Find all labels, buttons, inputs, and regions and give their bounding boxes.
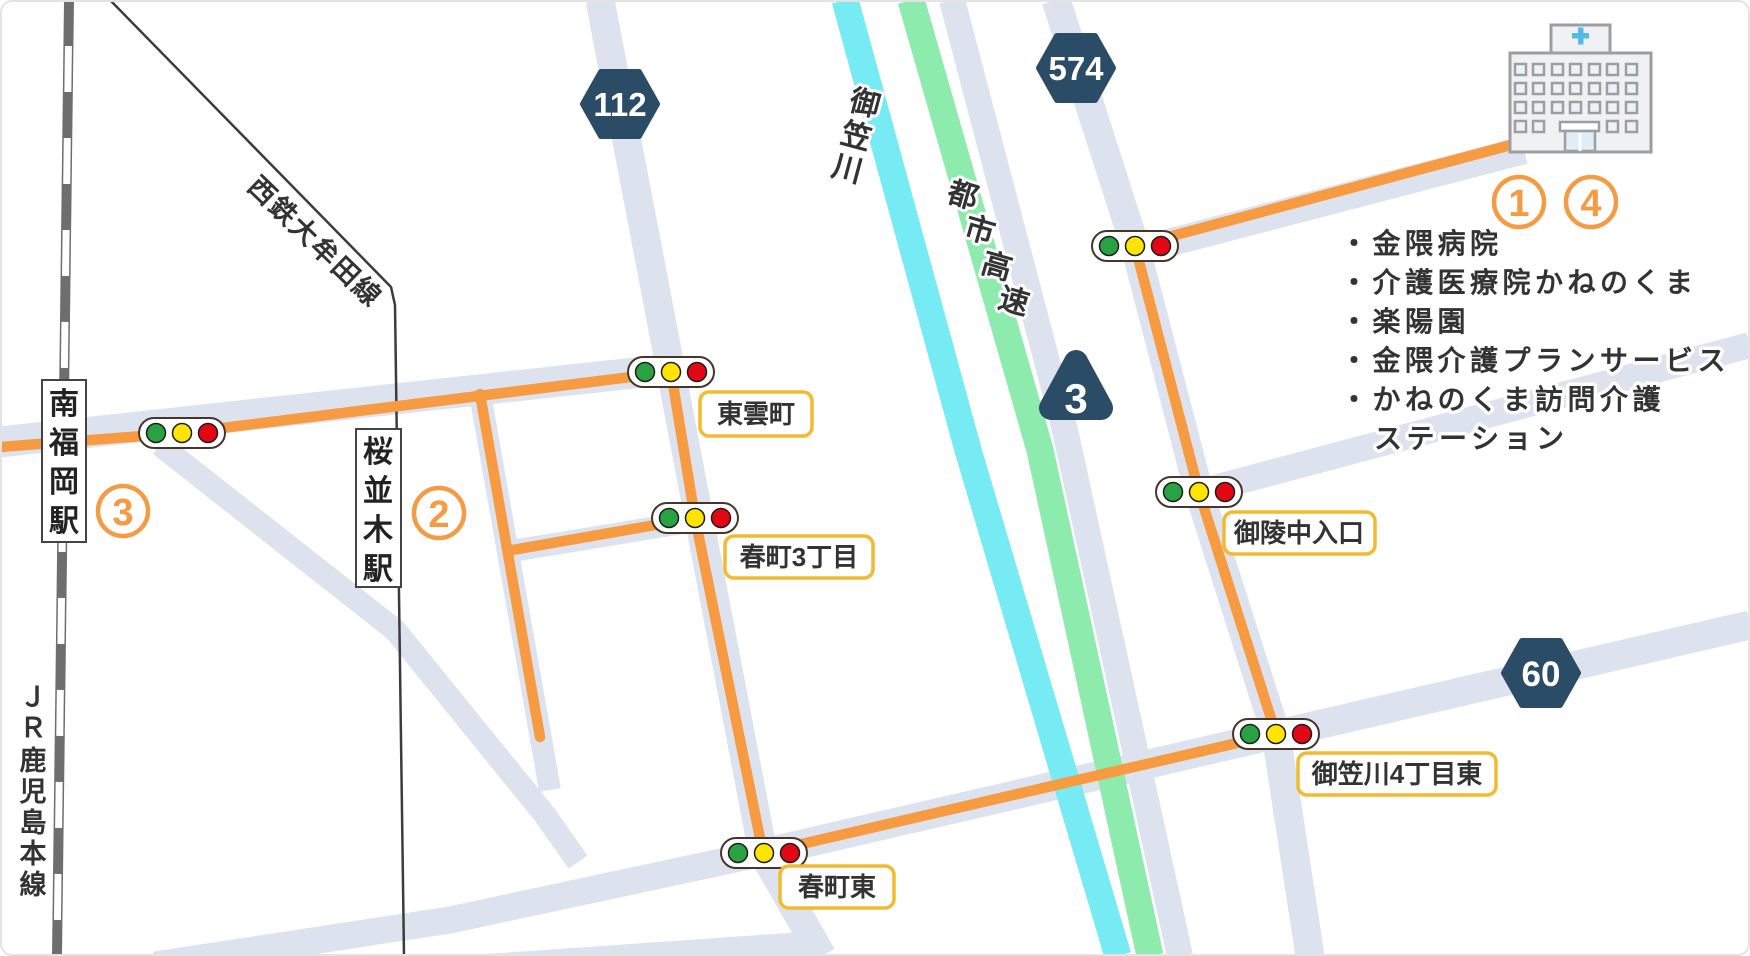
- svg-text:岡: 岡: [49, 466, 79, 499]
- svg-text:3: 3: [112, 492, 133, 534]
- svg-text:574: 574: [1048, 50, 1104, 87]
- svg-text:3: 3: [1064, 375, 1087, 422]
- svg-text:御陵中入口: 御陵中入口: [1233, 518, 1364, 548]
- svg-text:並: 並: [363, 475, 393, 508]
- svg-text:島: 島: [20, 808, 47, 838]
- svg-text:鹿: 鹿: [20, 745, 47, 776]
- svg-text:駅: 駅: [49, 505, 79, 538]
- svg-text:本: 本: [20, 839, 47, 869]
- svg-text:Ｒ: Ｒ: [20, 713, 47, 743]
- svg-text:春町東: 春町東: [798, 872, 876, 902]
- svg-text:桜: 桜: [363, 436, 393, 469]
- svg-text:南: 南: [49, 388, 79, 421]
- svg-text:4: 4: [1580, 183, 1601, 225]
- svg-text:・金隈介護プランサービス: ・金隈介護プランサービス: [1340, 344, 1730, 376]
- svg-text:・介護医療院かねのくま: ・介護医療院かねのくま: [1340, 266, 1698, 298]
- svg-text:春町3丁目: 春町3丁目: [740, 542, 858, 572]
- svg-text:御笠川4丁目東: 御笠川4丁目東: [1311, 759, 1482, 789]
- svg-text:Ｊ: Ｊ: [20, 682, 47, 712]
- svg-text:児: 児: [20, 777, 47, 807]
- svg-text:ステーション: ステーション: [1374, 423, 1568, 454]
- svg-text:2: 2: [428, 494, 449, 536]
- svg-text:木: 木: [362, 514, 393, 547]
- svg-text:・金隈病院: ・金隈病院: [1340, 227, 1503, 259]
- svg-text:112: 112: [593, 86, 646, 123]
- svg-text:福: 福: [48, 427, 79, 460]
- svg-text:東雲町: 東雲町: [717, 399, 795, 429]
- svg-text:・楽陽園: ・楽陽園: [1340, 306, 1470, 337]
- svg-text:線: 線: [20, 869, 47, 900]
- svg-text:60: 60: [1522, 655, 1561, 694]
- svg-text:・かねのくま訪問介護: ・かねのくま訪問介護: [1340, 383, 1665, 415]
- svg-text:駅: 駅: [363, 553, 393, 586]
- svg-text:1: 1: [1508, 183, 1529, 225]
